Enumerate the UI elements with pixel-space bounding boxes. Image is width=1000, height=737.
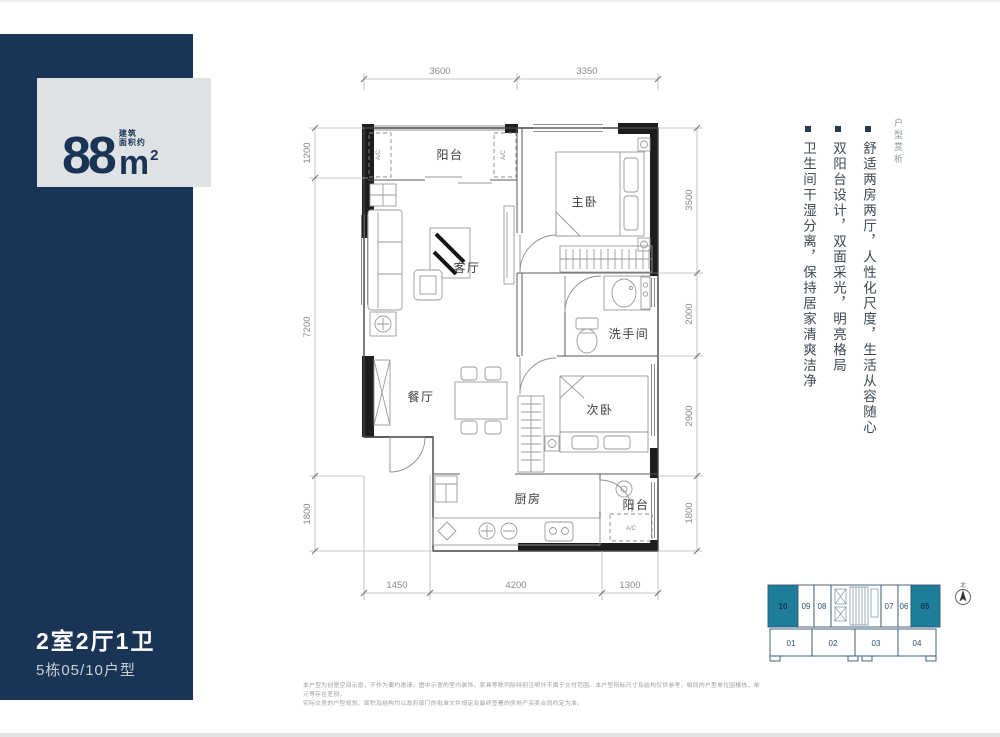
feature-section-label: 户型赏析: [892, 118, 905, 458]
compass-icon: 北: [956, 581, 971, 605]
svg-text:01: 01: [787, 639, 796, 648]
svg-text:07: 07: [885, 602, 894, 611]
page-bottom-border: [0, 733, 1000, 737]
disclaimer-line-1: 本户型为创意空间示意，不作为要约邀请，图中示意的室内装饰、家具等陈列除特别注明外…: [303, 681, 761, 699]
room-label-master: 主卧: [571, 195, 598, 209]
square-bullet-icon: [835, 126, 841, 132]
dining-furniture: [455, 367, 507, 434]
page-top-border: [0, 0, 1000, 2]
key-plan-bottom-row: 01 02 03 04: [770, 629, 936, 661]
feature-item: 卫生间干湿分离，保持居家清爽洁净: [798, 118, 818, 458]
feature-item: 双阳台设计，双面采光，明亮格局: [828, 118, 848, 458]
room-label-living: 客厅: [453, 260, 480, 275]
svg-text:北: 北: [960, 581, 966, 589]
disclaimer-line-2: 实际交房的户型规划、面积及结构均以政府部门的批准文件规定及最终签署的房地产买卖合…: [303, 699, 761, 708]
svg-text:03: 03: [872, 639, 881, 648]
dim-bottom: 1450 4200 1300: [361, 474, 661, 600]
key-plan-top-row: 10 09 08 07 06 05: [768, 585, 940, 627]
room-label-dining: 餐厅: [407, 389, 434, 404]
living-furniture: [368, 184, 514, 336]
layout-title: 2室2厅1卫: [36, 622, 155, 656]
second-bed-furniture: [518, 376, 648, 472]
svg-text:A/C: A/C: [376, 149, 382, 160]
svg-text:1800: 1800: [684, 502, 695, 523]
svg-text:10: 10: [779, 602, 788, 611]
floorplan-drawing: A/C A/C: [300, 55, 730, 615]
bathroom-furniture: [576, 276, 650, 353]
svg-text:2900: 2900: [684, 405, 695, 426]
feature-item: 舒适两房两厅，人性化尺度，生活从容随心: [858, 118, 878, 458]
room-label-bath: 洗手间: [609, 327, 650, 341]
svg-text:06: 06: [900, 602, 909, 611]
room-label-balcony-bottom: 阳台: [622, 497, 649, 512]
svg-text:09: 09: [802, 602, 811, 611]
dim-top: 3600 3350: [361, 66, 661, 90]
svg-text:7200: 7200: [302, 316, 313, 337]
area-figure: 88 建筑 面积约 m2: [62, 129, 158, 177]
dim-right: 3500 2000 2900 1800: [658, 125, 703, 554]
master-furniture: [556, 138, 652, 272]
svg-text:A/C: A/C: [501, 149, 507, 160]
building-key-plan: 10 09 08 07 06 05 01 02 03 04 北: [755, 576, 985, 668]
disclaimer-text: 本户型为创意空间示意，不作为要约邀请，图中示意的室内装饰、家具等陈列除特别注明外…: [303, 681, 761, 708]
svg-text:3600: 3600: [429, 66, 450, 77]
kitchen-furniture: [433, 476, 600, 545]
unit-subtitle: 5栋05/10户型: [36, 659, 136, 680]
svg-text:08: 08: [818, 602, 827, 611]
svg-text:02: 02: [829, 639, 838, 648]
svg-text:1300: 1300: [619, 580, 640, 591]
area-panel: 88 建筑 面积约 m2: [37, 78, 211, 187]
svg-text:A/C: A/C: [626, 526, 637, 532]
svg-text:1800: 1800: [302, 503, 313, 524]
svg-text:2000: 2000: [684, 303, 695, 324]
svg-text:3350: 3350: [576, 66, 597, 77]
svg-text:05: 05: [921, 602, 930, 611]
svg-text:04: 04: [913, 639, 922, 648]
area-unit: m2: [119, 150, 159, 177]
room-label-second: 次卧: [586, 403, 613, 417]
room-label-kitchen: 厨房: [514, 491, 541, 506]
square-bullet-icon: [805, 126, 811, 132]
area-value: 88: [62, 136, 114, 177]
square-bullet-icon: [865, 126, 871, 132]
room-label-balcony-top: 阳台: [436, 147, 463, 162]
feature-text-block: 户型赏析 舒适两房两厅，人性化尺度，生活从容随心 双阳台设计，双面采光，明亮格局…: [788, 118, 905, 458]
svg-text:3500: 3500: [684, 189, 695, 210]
svg-text:1450: 1450: [386, 580, 407, 591]
svg-text:1200: 1200: [302, 142, 313, 163]
svg-text:4200: 4200: [505, 580, 526, 591]
